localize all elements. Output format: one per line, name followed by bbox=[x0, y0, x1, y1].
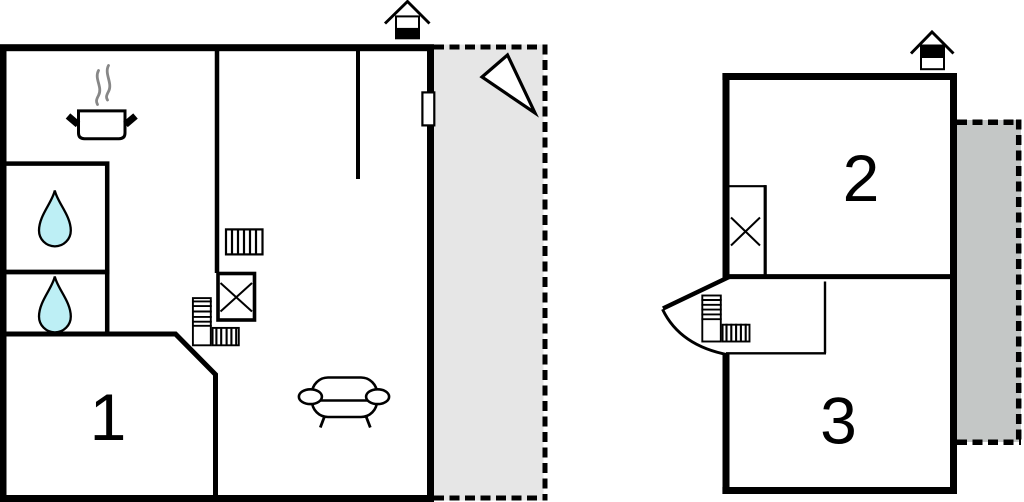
svg-text:3: 3 bbox=[820, 384, 857, 458]
svg-text:2: 2 bbox=[843, 141, 880, 215]
svg-text:1: 1 bbox=[90, 380, 127, 454]
